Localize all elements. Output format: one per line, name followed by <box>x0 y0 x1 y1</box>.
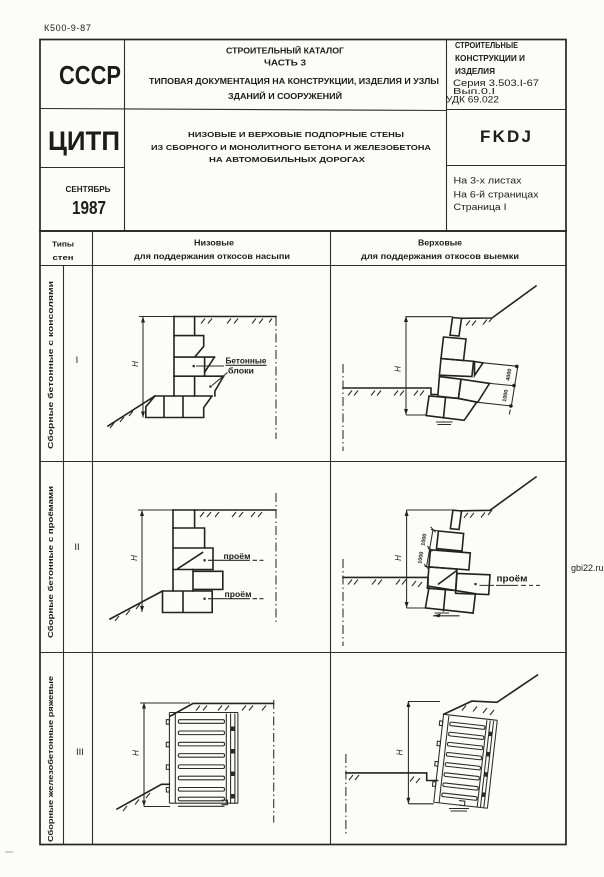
svg-text:III: III <box>76 747 84 758</box>
svg-text:НИЗОВЫЕ И ВЕРХОВЫЕ ПОДПОРНЫ: НИЗОВЫЕ И ВЕРХОВЫЕ ПОДПОРНЫЕ СТЕНЫ <box>188 130 404 139</box>
svg-text:для поддержания откосов выемки: для поддержания откосов выемки <box>361 252 519 261</box>
svg-text:Сборные железобетонные ряжевые: Сборные железобетонные ряжевые <box>47 676 55 842</box>
svg-text:I: I <box>76 355 79 366</box>
svg-text:FKDJ: FKDJ <box>480 127 534 146</box>
svg-text:ИЗ СБОРНОГО И МОНОЛИТНОГО: ИЗ СБОРНОГО И МОНОЛИТНОГО БЕТОНА И ЖЕЛЕЗ… <box>151 143 432 152</box>
svg-text:ИЗДЕЛИЯ: ИЗДЕЛИЯ <box>455 66 495 76</box>
svg-text:gbi22.ru: gbi22.ru <box>571 563 604 573</box>
svg-text:КОНСТРУКЦИИ И: КОНСТРУКЦИИ И <box>455 53 525 63</box>
svg-text:На 3-х листах: На 3-х листах <box>454 176 523 186</box>
svg-text:проём: проём <box>225 589 252 599</box>
svg-text:ТИПОВАЯ ДОКУМЕНТАЦИЯ НА КОНС: ТИПОВАЯ ДОКУМЕНТАЦИЯ НА КОНСТРУКЦИИ, ИЗД… <box>149 77 439 86</box>
svg-text:ЧАСТЬ 3: ЧАСТЬ 3 <box>264 59 307 68</box>
svg-text:Н: Н <box>396 749 405 755</box>
svg-text:Верховые: Верховые <box>418 239 463 248</box>
svg-text:Сборные бетонные с консолями: Сборные бетонные с консолями <box>47 281 55 449</box>
svg-text:На 6-й страницах: На 6-й страницах <box>454 190 540 200</box>
svg-text:Сборные бетонные с проёмами: Сборные бетонные с проёмами <box>47 486 55 638</box>
svg-text:Типы: Типы <box>52 240 74 249</box>
svg-text:блоки: блоки <box>228 365 254 375</box>
svg-text:Н: Н <box>132 750 141 756</box>
svg-text:Бетонные: Бетонные <box>226 356 267 366</box>
svg-text:УДК 69.022: УДК 69.022 <box>446 95 499 105</box>
svg-text:II: II <box>74 542 79 553</box>
svg-text:ЦИТП: ЦИТП <box>48 126 120 156</box>
svg-text:проём: проём <box>497 574 528 585</box>
svg-text:К500-9-87: К500-9-87 <box>44 23 92 33</box>
svg-text:для поддержания откосов насыпи: для поддержания откосов насыпи <box>134 252 290 261</box>
svg-text:СССР: СССР <box>59 60 121 90</box>
svg-text:СТРОИТЕЛЬНЫЙ КАТАЛОГ: СТРОИТЕЛЬНЫЙ КАТАЛОГ <box>226 47 345 56</box>
svg-text:ЗДАНИЙ И СООРУЖЕНИЙ: ЗДАНИЙ И СООРУЖЕНИЙ <box>228 92 342 101</box>
svg-text:СЕНТЯБРЬ: СЕНТЯБРЬ <box>66 185 111 194</box>
svg-text:Н: Н <box>130 555 139 561</box>
svg-text:стен: стен <box>53 253 74 262</box>
svg-text:Н: Н <box>131 361 140 367</box>
svg-text:НА АВТОМОБИЛЬНЫХ ДОРОГАХ: НА АВТОМОБИЛЬНЫХ ДОРОГАХ <box>209 155 365 164</box>
svg-text:проём: проём <box>224 551 251 561</box>
svg-text:Страница I: Страница I <box>454 202 507 212</box>
svg-text:Н: Н <box>394 555 403 561</box>
svg-text:Н: Н <box>394 366 403 372</box>
svg-text:Низовые: Низовые <box>194 239 235 248</box>
svg-text:1987: 1987 <box>72 198 106 218</box>
svg-text:СТРОИТЕЛЬНЫЕ: СТРОИТЕЛЬНЫЕ <box>455 40 518 50</box>
